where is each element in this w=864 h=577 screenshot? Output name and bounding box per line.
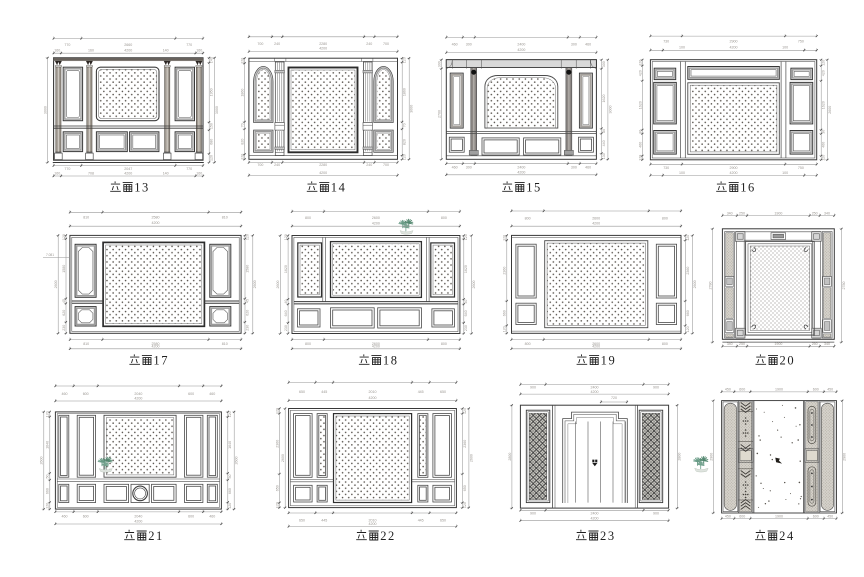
- svg-text:20: 20: [780, 354, 796, 368]
- svg-text:30: 30: [638, 130, 642, 134]
- svg-text:120: 120: [822, 155, 826, 161]
- svg-text:100: 100: [679, 45, 685, 49]
- svg-text:300: 300: [437, 61, 441, 67]
- svg-text:120: 120: [403, 154, 407, 160]
- svg-text:650: 650: [299, 390, 305, 394]
- svg-text:120: 120: [62, 234, 66, 240]
- svg-text:620: 620: [245, 310, 249, 316]
- svg-text:2580: 2580: [152, 216, 160, 220]
- svg-text:730: 730: [663, 40, 669, 44]
- svg-text:2600: 2600: [281, 454, 285, 462]
- svg-text:4200: 4200: [591, 390, 599, 394]
- svg-text:1900: 1900: [775, 388, 783, 392]
- svg-text:160: 160: [196, 48, 202, 52]
- svg-text:4200: 4200: [517, 170, 525, 174]
- svg-text:1860: 1860: [403, 88, 407, 96]
- svg-text:4200: 4200: [730, 171, 738, 175]
- svg-text:770: 770: [186, 43, 192, 47]
- svg-text:1900: 1900: [774, 211, 782, 215]
- svg-text:4200: 4200: [134, 520, 142, 524]
- svg-text:340: 340: [727, 342, 733, 346]
- svg-text:445: 445: [321, 518, 327, 522]
- svg-text:810: 810: [222, 342, 228, 346]
- svg-text:2400: 2400: [591, 512, 599, 516]
- svg-text:250: 250: [739, 342, 745, 346]
- svg-text:2800: 2800: [678, 453, 682, 461]
- svg-text:250: 250: [812, 211, 818, 215]
- svg-text:4200: 4200: [372, 221, 380, 225]
- svg-text:120: 120: [638, 60, 642, 66]
- svg-text:4200: 4200: [517, 48, 525, 52]
- svg-text:23: 23: [600, 529, 616, 543]
- svg-text:300: 300: [466, 43, 472, 47]
- svg-text:450: 450: [827, 388, 833, 392]
- svg-text:600: 600: [188, 514, 194, 518]
- svg-text:460: 460: [452, 43, 458, 47]
- svg-text:445: 445: [418, 518, 424, 522]
- svg-text:140: 140: [210, 57, 214, 63]
- svg-text:2600: 2600: [276, 281, 280, 289]
- svg-text:4200: 4200: [372, 344, 380, 348]
- svg-text:24: 24: [779, 529, 795, 543]
- svg-text:2600: 2600: [469, 454, 473, 462]
- svg-text:3000: 3000: [44, 106, 48, 114]
- svg-text:2600: 2600: [372, 216, 380, 220]
- svg-text:460: 460: [638, 142, 642, 148]
- svg-text:230: 230: [245, 325, 249, 331]
- svg-text:4200: 4200: [369, 522, 377, 526]
- svg-text:50: 50: [46, 475, 50, 479]
- svg-text:4200: 4200: [152, 221, 160, 225]
- svg-text:700: 700: [383, 42, 389, 46]
- svg-text:18: 18: [383, 354, 399, 368]
- svg-text:650: 650: [463, 485, 467, 491]
- svg-text:120: 120: [822, 60, 826, 66]
- svg-text:2400: 2400: [517, 43, 525, 47]
- svg-text:708: 708: [88, 172, 94, 176]
- svg-text:340: 340: [824, 211, 830, 215]
- svg-text:460: 460: [62, 514, 68, 518]
- svg-text:45: 45: [62, 299, 66, 303]
- svg-text:1640: 1640: [46, 441, 50, 449]
- svg-text:650: 650: [299, 518, 305, 522]
- svg-text:4200: 4200: [591, 516, 599, 520]
- svg-text:300: 300: [602, 61, 606, 67]
- svg-text:460: 460: [452, 165, 458, 169]
- svg-text:120: 120: [46, 411, 50, 417]
- svg-text:230: 230: [62, 325, 66, 331]
- svg-text:120: 120: [241, 58, 245, 64]
- svg-text:120: 120: [503, 326, 507, 332]
- svg-text:120: 120: [686, 326, 690, 332]
- svg-text:800: 800: [441, 342, 447, 346]
- svg-text:600: 600: [813, 388, 819, 392]
- svg-text:140: 140: [163, 172, 169, 176]
- svg-text:800: 800: [525, 217, 531, 221]
- svg-text:3000: 3000: [608, 106, 612, 114]
- svg-text:1580: 1580: [62, 265, 66, 273]
- svg-text:240: 240: [274, 42, 280, 46]
- svg-text:650: 650: [440, 390, 446, 394]
- svg-text:160: 160: [54, 172, 60, 176]
- svg-text:660: 660: [686, 310, 690, 316]
- svg-text:810: 810: [222, 216, 228, 220]
- svg-text:22: 22: [380, 529, 396, 543]
- svg-text:450: 450: [827, 514, 833, 518]
- svg-text:2800: 2800: [508, 453, 512, 461]
- svg-text:1580: 1580: [245, 265, 249, 273]
- svg-text:4200: 4200: [319, 171, 327, 175]
- svg-text:1950: 1950: [210, 88, 214, 96]
- svg-text:14: 14: [331, 181, 347, 195]
- svg-text:2600: 2600: [693, 280, 697, 288]
- svg-text:2780: 2780: [842, 282, 846, 290]
- svg-text:445: 445: [321, 390, 327, 394]
- svg-text:2010: 2010: [369, 390, 377, 394]
- svg-text:800: 800: [305, 216, 311, 220]
- svg-text:445: 445: [418, 390, 424, 394]
- svg-text:1620: 1620: [284, 265, 288, 273]
- svg-text:770: 770: [64, 167, 70, 171]
- svg-text:810: 810: [83, 216, 89, 220]
- svg-text:4200: 4200: [134, 396, 142, 400]
- svg-text:120: 120: [228, 503, 232, 509]
- svg-text:1620: 1620: [638, 101, 642, 109]
- svg-text:2040: 2040: [134, 392, 142, 396]
- svg-text:750: 750: [798, 40, 804, 44]
- svg-text:810: 810: [83, 342, 89, 346]
- svg-text:600: 600: [739, 514, 745, 518]
- svg-text:600: 600: [188, 392, 194, 396]
- svg-text:120: 120: [241, 154, 245, 160]
- svg-text:120: 120: [463, 408, 467, 414]
- svg-text:17: 17: [153, 354, 169, 368]
- svg-text:900: 900: [530, 512, 536, 516]
- svg-text:50: 50: [228, 475, 232, 479]
- svg-text:770: 770: [186, 167, 192, 171]
- svg-text:1620: 1620: [602, 95, 606, 103]
- svg-text:120: 120: [463, 502, 467, 508]
- svg-text:120: 120: [275, 502, 279, 508]
- svg-text:640: 640: [464, 310, 468, 316]
- svg-text:1860: 1860: [241, 89, 245, 97]
- svg-text:130: 130: [602, 153, 606, 159]
- svg-text:340: 340: [824, 342, 830, 346]
- svg-text:120: 120: [284, 234, 288, 240]
- svg-text:1620: 1620: [822, 101, 826, 109]
- svg-text:3000: 3000: [215, 106, 219, 114]
- svg-text:80: 80: [602, 129, 606, 133]
- svg-text:2047: 2047: [124, 167, 132, 171]
- svg-text:70: 70: [241, 123, 245, 127]
- svg-text:2780: 2780: [709, 282, 713, 290]
- svg-text:800: 800: [662, 342, 668, 346]
- svg-text:2900: 2900: [730, 40, 738, 44]
- svg-text:800: 800: [441, 216, 447, 220]
- svg-text:600: 600: [739, 388, 745, 392]
- svg-text:160: 160: [88, 48, 94, 52]
- svg-text:2360: 2360: [463, 440, 467, 448]
- svg-text:120: 120: [638, 155, 642, 161]
- svg-text:16: 16: [740, 181, 756, 195]
- svg-text:420: 420: [822, 70, 826, 76]
- svg-text:120: 120: [245, 234, 249, 240]
- svg-text:240: 240: [366, 163, 372, 167]
- svg-text:120: 120: [503, 235, 507, 241]
- svg-text:240: 240: [366, 42, 372, 46]
- svg-text:750: 750: [798, 166, 804, 170]
- svg-text:120: 120: [686, 235, 690, 241]
- svg-text:620: 620: [62, 310, 66, 316]
- svg-text:2600: 2600: [472, 281, 476, 289]
- svg-text:730: 730: [663, 166, 669, 170]
- svg-text:1900: 1900: [775, 514, 783, 518]
- svg-text:120: 120: [275, 408, 279, 414]
- svg-text:19: 19: [601, 354, 617, 368]
- svg-text:460: 460: [62, 392, 68, 396]
- svg-text:13: 13: [134, 181, 150, 195]
- svg-text:770: 770: [64, 43, 70, 47]
- svg-text:700: 700: [257, 163, 263, 167]
- svg-text:4200: 4200: [319, 47, 327, 51]
- svg-text:460: 460: [585, 43, 591, 47]
- svg-text:720: 720: [611, 396, 617, 400]
- svg-text:420: 420: [638, 70, 642, 76]
- svg-text:2660: 2660: [124, 43, 132, 47]
- svg-text:15: 15: [526, 181, 542, 195]
- svg-text:4200: 4200: [152, 344, 160, 348]
- svg-text:230: 230: [284, 325, 288, 331]
- svg-text:4200: 4200: [730, 45, 738, 49]
- svg-text:160: 160: [196, 172, 202, 176]
- svg-text:2280: 2280: [319, 163, 327, 167]
- svg-text:4200: 4200: [592, 222, 600, 226]
- svg-text:2900: 2900: [843, 453, 847, 461]
- svg-text:650: 650: [440, 518, 446, 522]
- svg-text:2400: 2400: [517, 165, 525, 169]
- svg-text:2360: 2360: [503, 267, 507, 275]
- svg-text:2600: 2600: [828, 106, 832, 114]
- svg-text:100: 100: [782, 45, 788, 49]
- svg-text:250: 250: [739, 211, 745, 215]
- svg-text:40: 40: [464, 300, 468, 304]
- svg-text:900: 900: [530, 386, 536, 390]
- svg-text:120: 120: [210, 155, 214, 161]
- svg-text:2360: 2360: [686, 267, 690, 275]
- svg-text:2600: 2600: [253, 280, 257, 288]
- svg-text:2900: 2900: [730, 166, 738, 170]
- svg-text:300: 300: [571, 165, 577, 169]
- svg-text:2700: 2700: [437, 110, 441, 118]
- svg-text:700: 700: [383, 163, 389, 167]
- svg-text:140: 140: [163, 48, 169, 52]
- svg-text:650: 650: [275, 485, 279, 491]
- svg-text:700: 700: [257, 42, 263, 46]
- svg-text:660: 660: [46, 488, 50, 494]
- svg-text:45: 45: [245, 299, 249, 303]
- svg-text:120: 120: [464, 234, 468, 240]
- svg-text:680: 680: [210, 139, 214, 145]
- svg-text:660: 660: [228, 488, 232, 494]
- svg-text:70: 70: [403, 123, 407, 127]
- svg-text:4200: 4200: [124, 172, 132, 176]
- svg-text:900: 900: [653, 512, 659, 516]
- svg-text:240: 240: [274, 163, 280, 167]
- svg-text:800: 800: [662, 217, 668, 221]
- svg-text:4200: 4200: [592, 344, 600, 348]
- svg-text:600: 600: [813, 514, 819, 518]
- svg-text:600: 600: [83, 392, 89, 396]
- svg-text:450: 450: [725, 388, 731, 392]
- svg-text:2600: 2600: [592, 217, 600, 221]
- svg-text:820: 820: [403, 139, 407, 145]
- svg-text:600: 600: [83, 514, 89, 518]
- svg-text:300: 300: [571, 43, 577, 47]
- svg-text:660: 660: [503, 310, 507, 316]
- svg-text:120: 120: [403, 57, 407, 63]
- svg-text:230: 230: [464, 325, 468, 331]
- svg-text:460: 460: [209, 392, 215, 396]
- svg-text:900: 900: [653, 386, 659, 390]
- svg-text:460: 460: [822, 142, 826, 148]
- svg-text:440: 440: [602, 140, 606, 146]
- svg-text:800: 800: [305, 342, 311, 346]
- svg-text:2600: 2600: [54, 280, 58, 288]
- svg-text:2360: 2360: [275, 440, 279, 448]
- svg-text:7.081: 7.081: [46, 253, 54, 257]
- svg-text:2600: 2600: [40, 457, 44, 465]
- svg-text:30: 30: [822, 130, 826, 134]
- svg-text:2280: 2280: [319, 42, 327, 46]
- svg-text:3000: 3000: [410, 105, 414, 113]
- svg-text:4200: 4200: [124, 48, 132, 52]
- svg-text:2600: 2600: [235, 457, 239, 465]
- svg-text:120: 120: [228, 411, 232, 417]
- svg-text:2900: 2900: [709, 453, 713, 461]
- svg-text:460: 460: [585, 165, 591, 169]
- svg-text:1620: 1620: [464, 265, 468, 273]
- svg-text:2040: 2040: [134, 514, 142, 518]
- svg-text:800: 800: [525, 342, 531, 346]
- svg-text:120: 120: [46, 503, 50, 509]
- svg-text:450: 450: [725, 514, 731, 518]
- svg-text:460: 460: [209, 514, 215, 518]
- svg-text:4200: 4200: [369, 396, 377, 400]
- svg-text:100: 100: [782, 171, 788, 175]
- svg-text:1900: 1900: [774, 342, 782, 346]
- svg-text:300: 300: [466, 165, 472, 169]
- svg-text:160: 160: [54, 48, 60, 52]
- svg-text:340: 340: [727, 211, 733, 215]
- svg-text:820: 820: [241, 139, 245, 145]
- svg-text:250: 250: [812, 342, 818, 346]
- svg-text:150: 150: [210, 123, 214, 129]
- svg-text:21: 21: [148, 529, 164, 543]
- svg-text:40: 40: [284, 300, 288, 304]
- svg-text:100: 100: [679, 171, 685, 175]
- svg-text:640: 640: [284, 310, 288, 316]
- svg-text:1640: 1640: [228, 441, 232, 449]
